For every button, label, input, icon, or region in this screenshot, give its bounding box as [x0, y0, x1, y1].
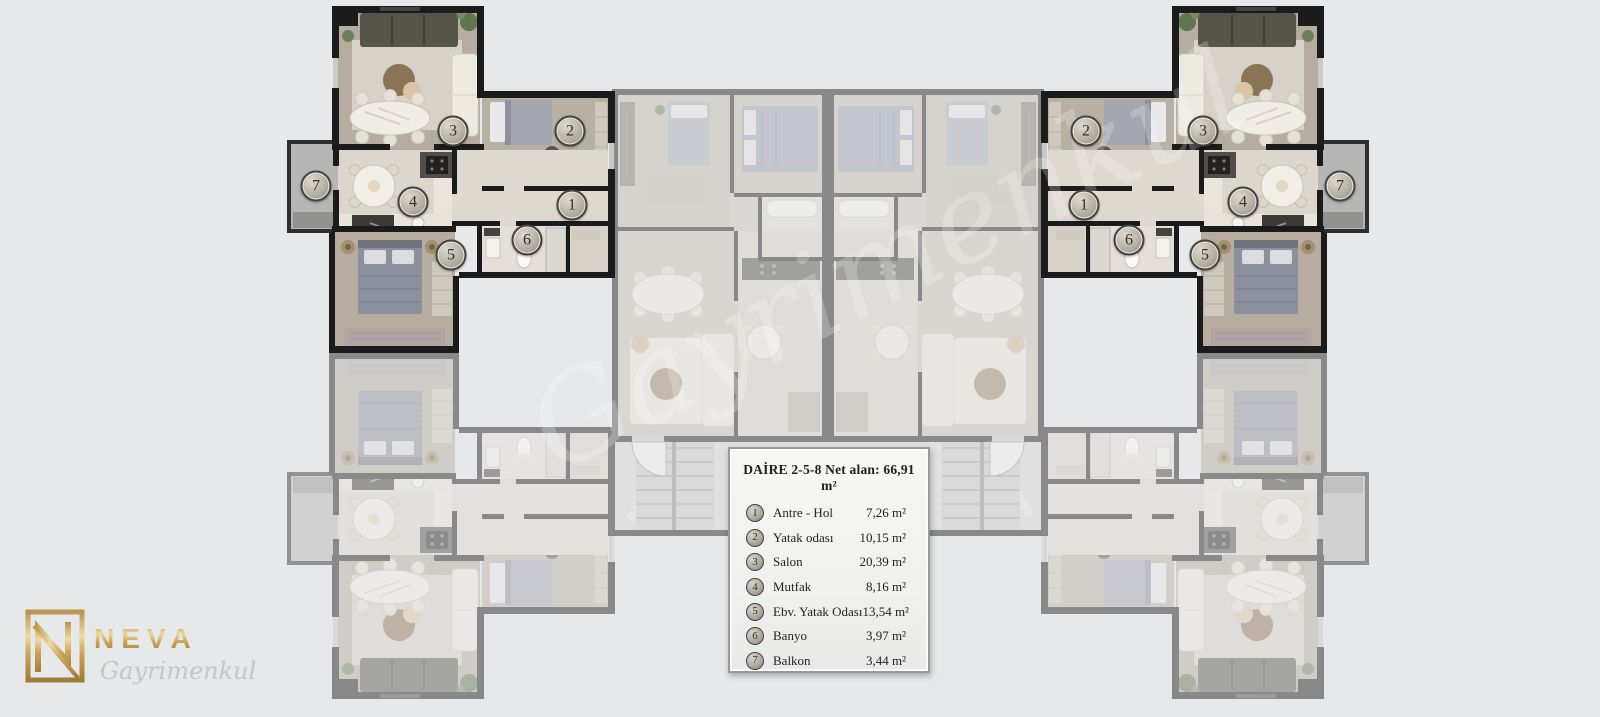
neva-logo-graphic: NEVA Gayrimenkul	[18, 594, 258, 699]
unit-middle-right-faded	[828, 89, 1044, 476]
room-marker-yatak-left: 2	[555, 116, 586, 147]
room-marker-ebeveyn-right: 5	[1190, 240, 1221, 271]
legend-item-number: 1	[746, 504, 764, 522]
neva-logo-name: NEVA	[94, 623, 198, 654]
room-marker-salon-left: 3	[438, 116, 469, 147]
legend-row-antre: 1 Antre - Hol 7,26 m²	[730, 501, 928, 526]
legend-panel: DAİRE 2-5-8 Net alan: 66,91 m² 1 Antre -…	[728, 447, 930, 673]
legend-row-banyo: 6 Banyo 3,97 m²	[730, 624, 928, 649]
legend-item-label: Salon	[773, 554, 803, 570]
neva-logo-subtitle: Gayrimenkul	[100, 657, 256, 685]
neva-logo: NEVA Gayrimenkul	[18, 594, 258, 699]
floor-plan-page: Gayrimenkul 1 2 3 4 5 6 7 1 2 3 4 5 6 7 …	[0, 0, 1600, 717]
legend-item-area: 7,26 m²	[866, 505, 906, 521]
legend-item-number: 2	[746, 529, 764, 547]
room-marker-salon-right: 3	[1188, 116, 1219, 147]
legend-item-area: 8,16 m²	[866, 579, 906, 595]
legend-row-ebeveyn: 5 Ebv. Yatak Odası 13,54 m²	[730, 599, 928, 624]
unit-middle-left-faded	[612, 89, 828, 476]
room-marker-yatak-right: 2	[1071, 116, 1102, 147]
legend-row-salon: 3 Salon 20,39 m²	[730, 550, 928, 575]
legend-item-label: Yatak odası	[773, 530, 833, 546]
legend-item-label: Mutfak	[773, 579, 811, 595]
room-marker-banyo-right: 6	[1114, 225, 1145, 256]
legend-row-balkon: 7 Balkon 3,44 m²	[730, 649, 928, 674]
legend-item-area: 20,39 m²	[859, 554, 906, 570]
legend-item-number: 4	[746, 578, 764, 596]
legend-item-label: Balkon	[773, 653, 811, 669]
room-marker-balkon-left: 7	[301, 171, 332, 202]
legend-item-label: Banyo	[773, 628, 807, 644]
room-marker-antre-right: 1	[1069, 190, 1100, 221]
legend-item-area: 13,54 m²	[862, 604, 909, 620]
unit-bottom-left-faded	[287, 352, 615, 699]
room-marker-ebeveyn-left: 5	[436, 240, 467, 271]
legend-item-label: Antre - Hol	[773, 505, 833, 521]
room-marker-mutfak-right: 4	[1228, 187, 1259, 218]
unit-top-right-highlighted	[1041, 6, 1369, 353]
legend-item-area: 3,44 m²	[866, 653, 906, 669]
legend-item-label: Ebv. Yatak Odası	[773, 604, 862, 620]
room-marker-balkon-right: 7	[1325, 171, 1356, 202]
legend-item-number: 5	[746, 603, 764, 621]
legend-item-number: 3	[746, 553, 764, 571]
legend-title: DAİRE 2-5-8 Net alan: 66,91 m²	[738, 462, 920, 494]
neva-logo-mark-icon	[28, 612, 82, 680]
legend-item-area: 10,15 m²	[859, 530, 906, 546]
legend-item-number: 7	[746, 652, 764, 670]
legend-row-mutfak: 4 Mutfak 8,16 m²	[730, 575, 928, 600]
legend-item-number: 6	[746, 627, 764, 645]
unit-top-left-highlighted	[287, 6, 615, 353]
room-marker-mutfak-left: 4	[398, 187, 429, 218]
room-marker-antre-left: 1	[557, 190, 588, 221]
unit-bottom-right-faded	[1041, 352, 1369, 699]
room-marker-banyo-left: 6	[512, 225, 543, 256]
legend-item-area: 3,97 m²	[866, 628, 906, 644]
legend-row-yatak: 2 Yatak odası 10,15 m²	[730, 526, 928, 551]
